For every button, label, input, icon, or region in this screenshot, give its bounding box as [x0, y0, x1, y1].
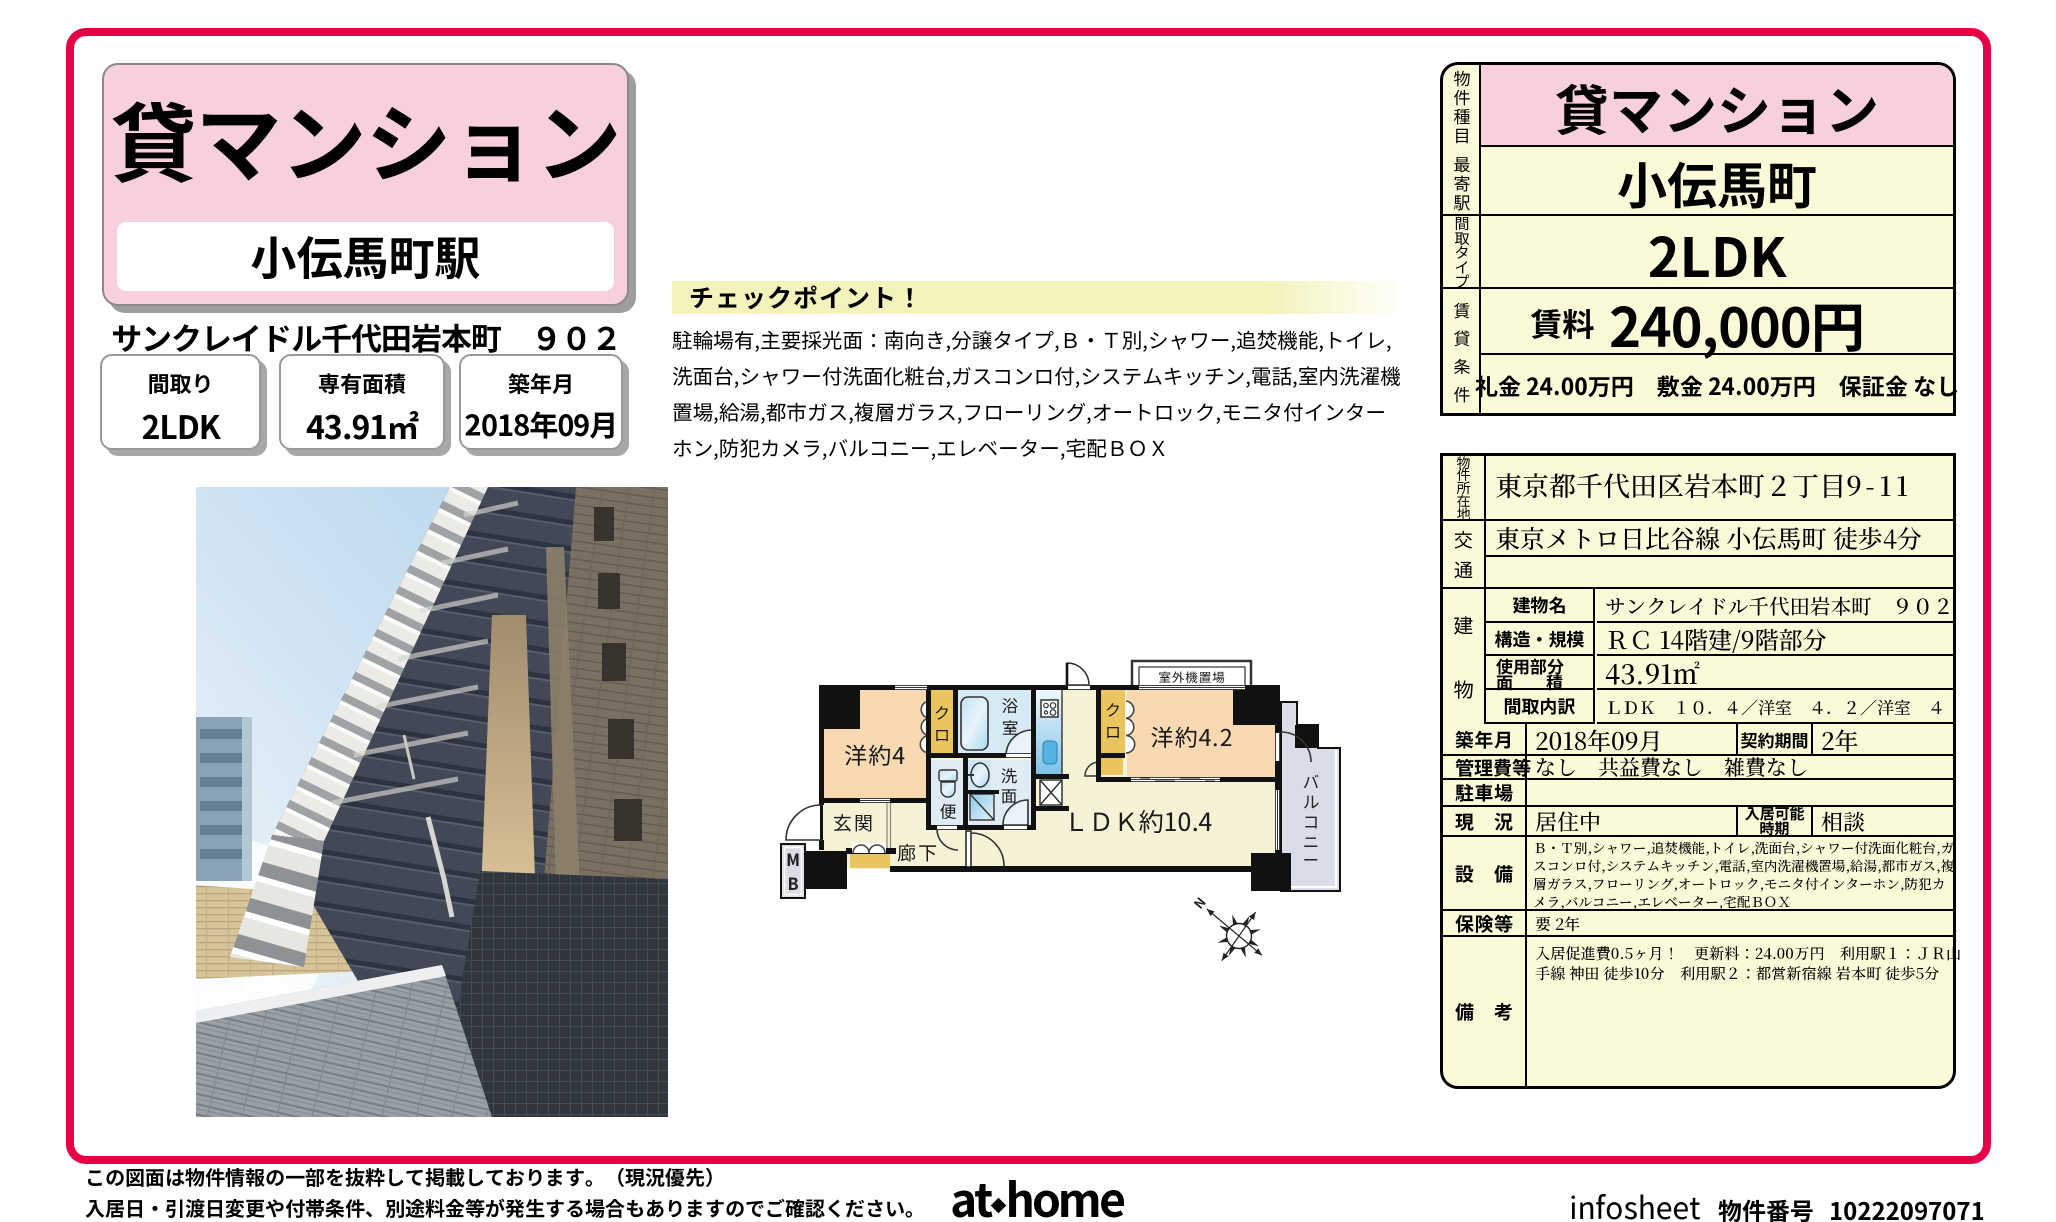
svg-text:M: M — [786, 847, 800, 871]
svg-text:廊下: 廊下 — [897, 839, 939, 866]
svg-text:ー: ー — [1303, 847, 1320, 871]
svg-text:ＬＤＫ約10.4: ＬＤＫ約10.4 — [1064, 803, 1213, 839]
svg-text:室外機置場: 室外機置場 — [1158, 667, 1226, 686]
svg-text:ク: ク — [1105, 697, 1121, 721]
svg-text:洋約4.2: 洋約4.2 — [1151, 719, 1234, 753]
svg-text:ロ: ロ — [934, 722, 950, 746]
svg-text:洋約4: 洋約4 — [844, 737, 906, 771]
svg-text:便: 便 — [940, 798, 957, 823]
svg-text:ロ: ロ — [1105, 719, 1121, 743]
svg-text:浴: 浴 — [1002, 693, 1019, 717]
svg-text:B: B — [788, 871, 799, 895]
svg-text:玄関: 玄関 — [833, 809, 875, 836]
svg-text:ク: ク — [934, 700, 950, 724]
